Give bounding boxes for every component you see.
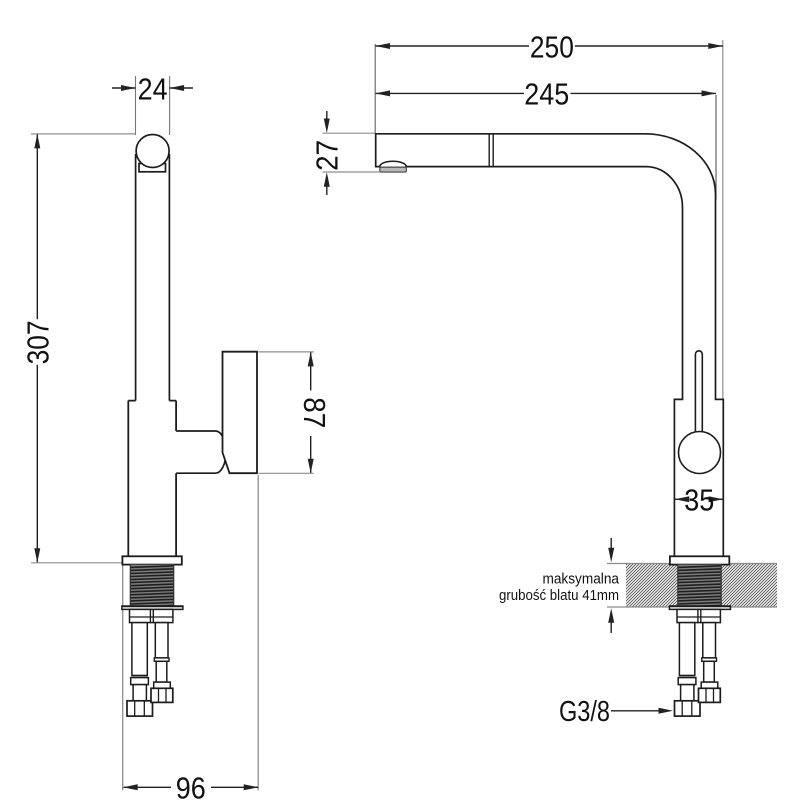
- svg-text:G3/8: G3/8: [559, 696, 610, 728]
- svg-text:87: 87: [297, 397, 332, 428]
- svg-text:307: 307: [20, 320, 55, 364]
- svg-text:35: 35: [684, 482, 714, 517]
- svg-text:24: 24: [138, 71, 168, 106]
- svg-text:maksymalna: maksymalna: [543, 571, 620, 588]
- svg-text:96: 96: [176, 770, 206, 800]
- svg-text:27: 27: [309, 140, 344, 171]
- svg-text:grubość blatu 41mm: grubość blatu 41mm: [499, 587, 619, 604]
- svg-text:245: 245: [524, 77, 569, 112]
- svg-text:250: 250: [530, 29, 574, 64]
